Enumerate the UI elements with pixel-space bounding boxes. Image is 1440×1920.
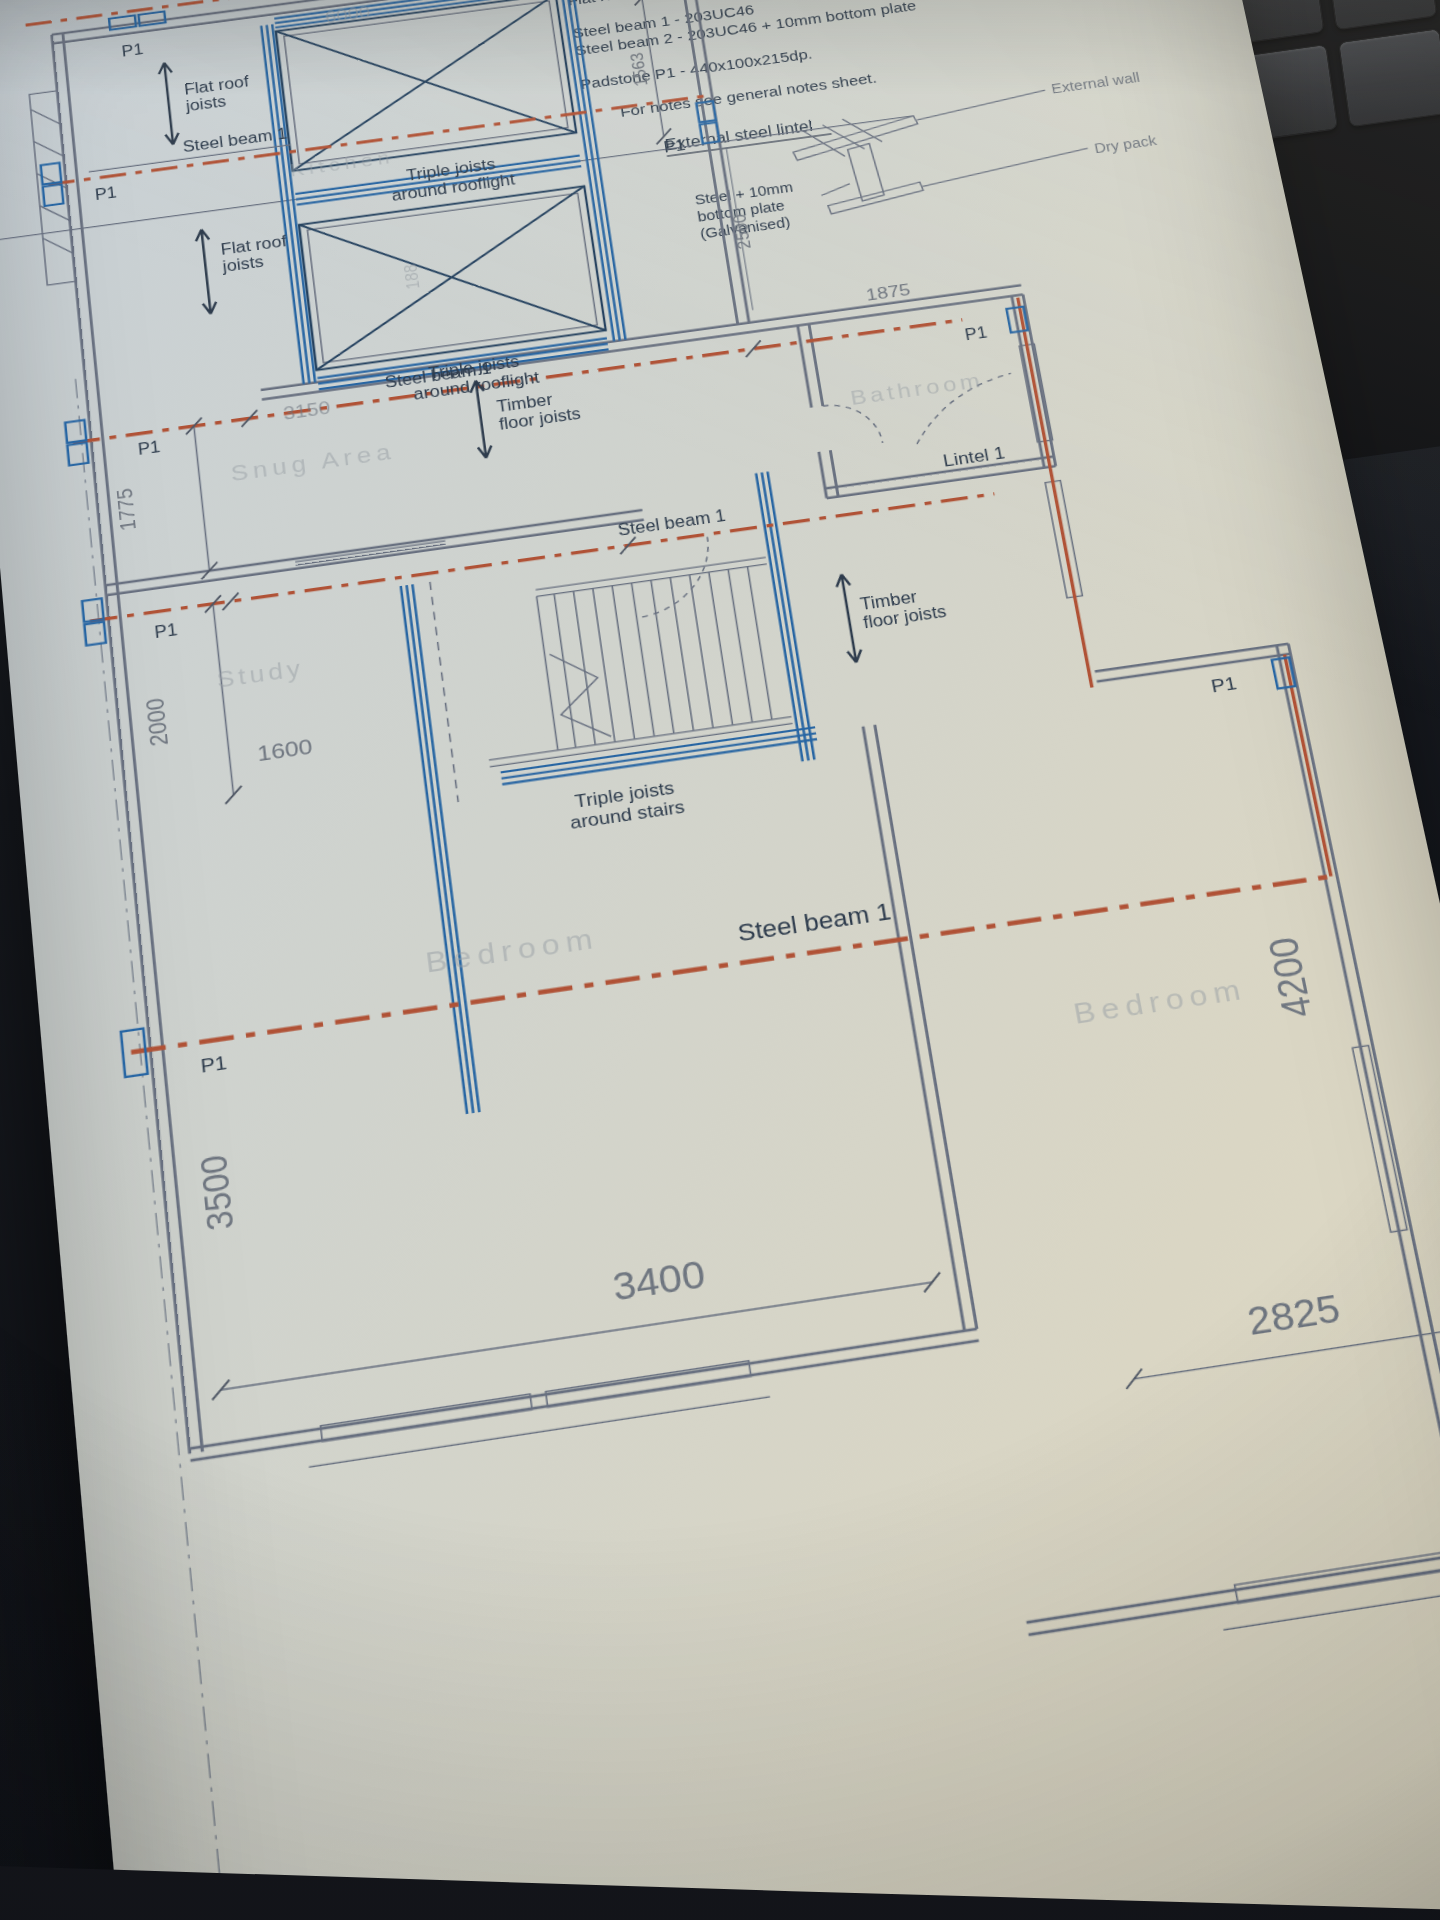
rooflight-2: [299, 186, 606, 370]
steel-beam-2-line: [26, 0, 596, 25]
rooflight-1: [276, 0, 576, 171]
room-kitchen: Kitchen: [289, 147, 396, 180]
keyboard-key: [1324, 0, 1437, 30]
label-p1: P1: [137, 438, 161, 459]
dim-2500: 2500: [728, 213, 755, 250]
lintel-line: [1285, 655, 1331, 877]
stairs: [468, 557, 793, 767]
label-p1: P1: [662, 137, 686, 157]
dim-4200: 4200: [1260, 934, 1321, 1020]
label-p1: P1: [154, 621, 179, 643]
lintel-detail-title: External steel lintel: [664, 118, 814, 155]
plan-content: PRIOR TO Structure schedule Timber floor…: [0, 0, 1440, 1920]
label-p1: P1: [200, 1052, 228, 1078]
drawing-sheet: PRIOR TO Structure schedule Timber floor…: [0, 0, 1440, 1920]
label-p1: P1: [121, 41, 144, 60]
dim-2000: 2000: [140, 696, 173, 747]
label-p1: P1: [964, 324, 989, 344]
dim-1563: 1563: [625, 52, 651, 88]
dim-1775: 1775: [112, 487, 141, 532]
floor-plan-drawing: PRIOR TO Structure schedule Timber floor…: [0, 0, 1440, 1920]
steel-beam-1-line: [48, 96, 708, 185]
dim-2825: 2825: [1244, 1286, 1344, 1343]
dim-3400: 3400: [610, 1253, 708, 1309]
label-steel-beam-1: Steel beam 1: [182, 125, 288, 156]
steel-beam-1-line: [131, 876, 1333, 1052]
label-lintel-1: Lintel 1: [942, 443, 1007, 470]
schedule-item: Flat roof joists - 50x200dp C24 Timber m…: [567, 0, 996, 8]
room-study: Study: [215, 655, 305, 693]
dim-3500: 3500: [193, 1152, 242, 1233]
label-steel-beam-1: Steel beam 1: [736, 899, 893, 947]
steel-beam-1-line: [90, 494, 994, 621]
room-bathroom: Bathroom: [849, 368, 986, 409]
dim-1600: 1600: [256, 734, 314, 766]
lintel-line: [1018, 298, 1092, 688]
room-snug-area: Snug Area: [229, 439, 396, 486]
dim-3150: 3150: [282, 398, 331, 424]
walls: [22, 0, 1440, 1920]
keyboard-key: [1338, 28, 1440, 127]
photo-scene: PRIOR TO Structure schedule Timber floor…: [0, 0, 1440, 1920]
windows: [200, 317, 1440, 1768]
callout-dry-pack: Dry pack: [1093, 134, 1158, 156]
dim-188: 188: [400, 263, 424, 291]
room-bedroom-right: Bedroom: [1071, 973, 1249, 1030]
label-p1: P1: [1209, 673, 1238, 697]
label-p1: P1: [94, 184, 117, 204]
callout-external-wall: External wall: [1050, 71, 1141, 97]
